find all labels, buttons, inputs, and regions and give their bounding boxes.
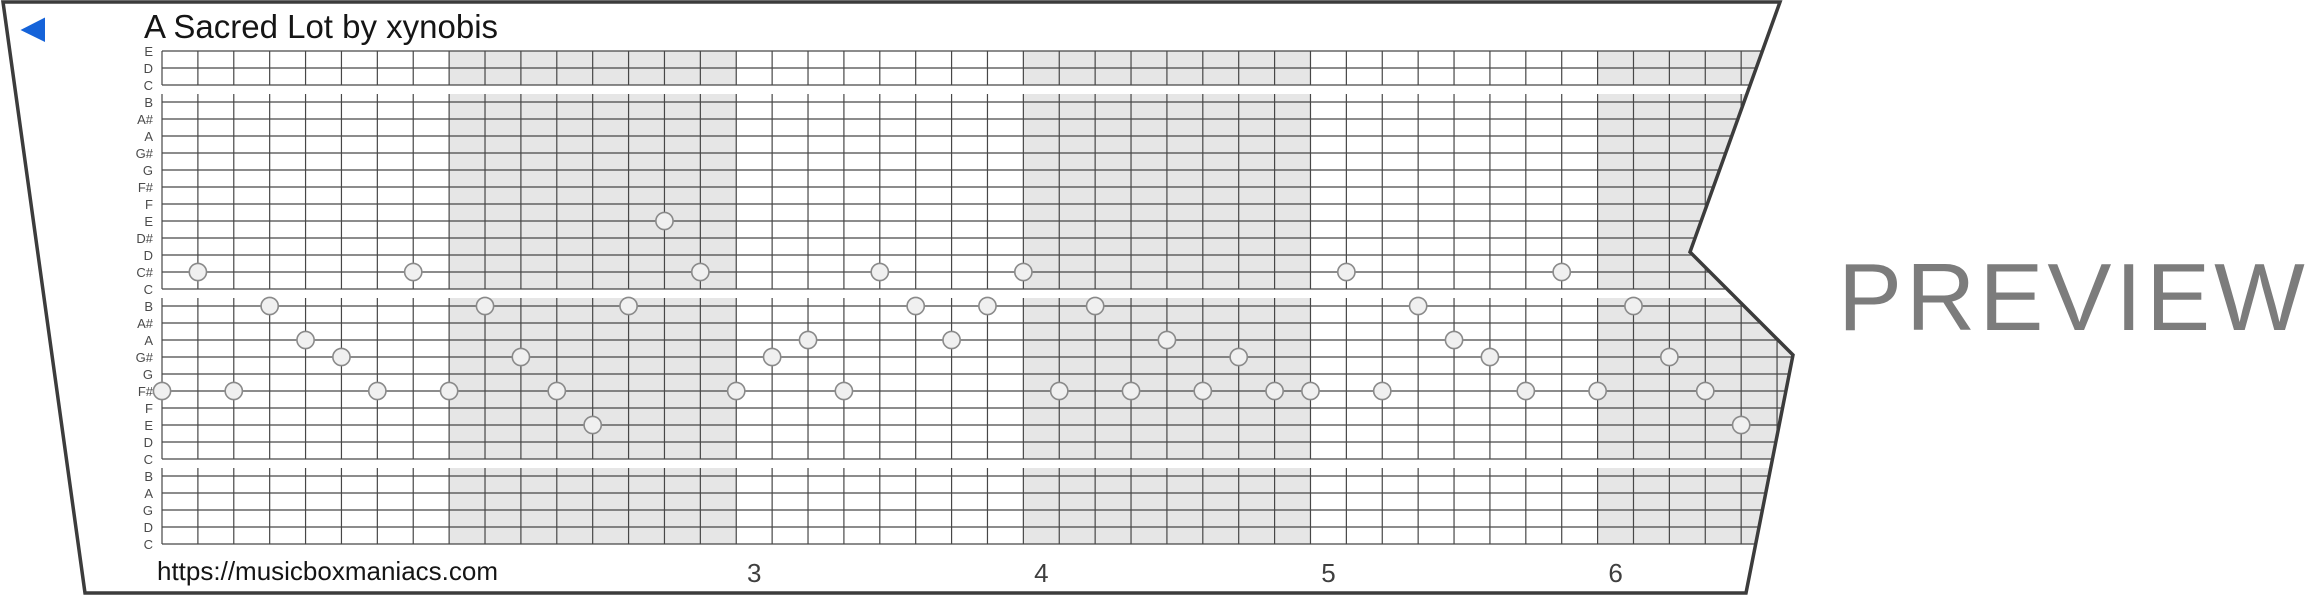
note-label: E	[103, 419, 153, 432]
note-dot	[1481, 348, 1498, 365]
note-label: B	[103, 300, 153, 313]
note-dot	[189, 263, 206, 280]
note-dot	[1553, 263, 1570, 280]
note-dot	[153, 382, 170, 399]
note-dot	[1661, 348, 1678, 365]
note-dot	[764, 348, 781, 365]
note-dot	[620, 297, 637, 314]
note-dot	[261, 297, 278, 314]
note-dot	[548, 382, 565, 399]
note-dot	[1051, 382, 1068, 399]
note-dot	[728, 382, 745, 399]
note-dot	[1589, 382, 1606, 399]
back-arrow-icon[interactable]	[21, 18, 46, 43]
note-label: G#	[103, 147, 153, 160]
note-label: A	[103, 334, 153, 347]
measure-number: 4	[1034, 559, 1048, 587]
note-dot	[1338, 263, 1355, 280]
note-label: C#	[103, 266, 153, 279]
site-url: https://musicboxmaniacs.com	[157, 557, 498, 585]
note-dot	[692, 263, 709, 280]
note-dot	[333, 348, 350, 365]
note-label: E	[103, 215, 153, 228]
note-dot	[1194, 382, 1211, 399]
note-dot	[1015, 263, 1032, 280]
note-dot	[1230, 348, 1247, 365]
note-label: B	[103, 470, 153, 483]
note-label: D	[103, 249, 153, 262]
note-dot	[1733, 416, 1750, 433]
note-label: D	[103, 436, 153, 449]
music-strip-preview-page: A Sacred Lot by xynobis EDCBA#AG#GF#FED#…	[0, 0, 2310, 597]
note-dot	[835, 382, 852, 399]
note-dot	[441, 382, 458, 399]
note-dot	[369, 382, 386, 399]
strip-title: A Sacred Lot by xynobis	[144, 10, 498, 44]
note-dot	[1410, 297, 1427, 314]
note-dot	[799, 331, 816, 348]
measure-number: 6	[1608, 559, 1622, 587]
note-label: G	[103, 164, 153, 177]
preview-watermark: PREVIEW	[1838, 250, 2309, 346]
measure-number: 3	[747, 559, 761, 587]
note-label: G	[103, 504, 153, 517]
note-label: A	[103, 487, 153, 500]
note-label: C	[103, 453, 153, 466]
note-dot	[907, 297, 924, 314]
note-dot	[1445, 331, 1462, 348]
note-label: D	[103, 521, 153, 534]
measure-number: 5	[1321, 559, 1335, 587]
note-dot	[1517, 382, 1534, 399]
note-label: F	[103, 402, 153, 415]
note-label: C	[103, 79, 153, 92]
note-label: C	[103, 283, 153, 296]
note-dot	[656, 212, 673, 229]
note-label: A#	[103, 113, 153, 126]
note-dot	[871, 263, 888, 280]
note-label: A#	[103, 317, 153, 330]
note-label: E	[103, 45, 153, 58]
note-label: F	[103, 198, 153, 211]
note-label: B	[103, 96, 153, 109]
note-dot	[1302, 382, 1319, 399]
strip-grid	[153, 51, 1884, 544]
note-label: F#	[103, 385, 153, 398]
note-label: D	[103, 62, 153, 75]
note-label: G	[103, 368, 153, 381]
note-label: F#	[103, 181, 153, 194]
note-dot	[979, 297, 996, 314]
note-label: G#	[103, 351, 153, 364]
note-dot	[476, 297, 493, 314]
note-dot	[1158, 331, 1175, 348]
note-dot	[512, 348, 529, 365]
note-dot	[1266, 382, 1283, 399]
note-label: D#	[103, 232, 153, 245]
note-dot	[225, 382, 242, 399]
note-dot	[1374, 382, 1391, 399]
note-label: C	[103, 538, 153, 551]
note-dot	[297, 331, 314, 348]
note-dot	[1697, 382, 1714, 399]
note-dot	[1625, 297, 1642, 314]
note-dot	[1087, 297, 1104, 314]
note-dot	[943, 331, 960, 348]
note-dot	[584, 416, 601, 433]
note-dot	[1122, 382, 1139, 399]
note-dot	[405, 263, 422, 280]
note-label: A	[103, 130, 153, 143]
